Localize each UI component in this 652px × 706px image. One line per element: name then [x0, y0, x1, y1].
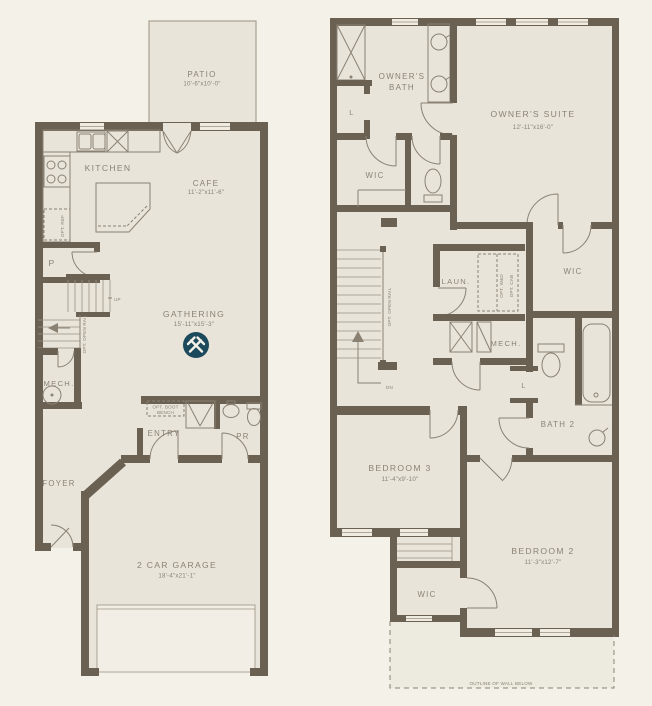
opt-open-rail-label-f1: OPT. OPEN RAIL [82, 314, 87, 353]
cafe-dims: 11'-2"x11'-6" [188, 189, 224, 196]
entry-label: ENTRY [148, 429, 181, 438]
first-floor-plan: PATIO 10'-6"x10'-0" KITCHEN CAFE 11'-2"x… [35, 21, 268, 676]
stairs-dn-label: DN [386, 385, 393, 390]
patio-dims: 10'-6"x10'-0" [183, 81, 220, 88]
foyer-label: FOYER [42, 479, 75, 488]
opt-cab-label: OPT. CAB [509, 275, 514, 298]
linen-label-owners: L [349, 108, 354, 117]
garage-door-recess [97, 605, 255, 672]
mech2-label: MECH. [491, 339, 522, 348]
mech-label: MECH. [44, 379, 75, 388]
opt-boot-bench-label-1: OPT. BOOT [152, 405, 178, 410]
laundry-label: LAUN. [442, 277, 471, 286]
shower-head-icon [350, 76, 353, 79]
wic-owners-label: WIC [365, 171, 384, 180]
opt-boot-bench-label-2: BENCH [157, 410, 174, 415]
kitchen-label: KITCHEN [85, 163, 132, 173]
bedroom3-label: BEDROOM 3 [368, 463, 431, 473]
pantry-label: P [48, 258, 55, 268]
opt-open-rail-label-f2: OPT. OPEN RAIL [387, 287, 392, 326]
linen-label-bath2: L [521, 383, 526, 390]
garage-label: 2 CAR GARAGE [137, 560, 217, 570]
wic-bedroom2-label: WIC [417, 590, 436, 599]
floor-plan-page: PATIO 10'-6"x10'-0" KITCHEN CAFE 11'-2"x… [0, 0, 652, 706]
bath2-label: BATH 2 [541, 420, 576, 429]
bedroom2-dims: 11'-3"x12'-7" [525, 559, 562, 566]
owners-bath-label-1: OWNER'S [379, 72, 426, 81]
room-main-fill [38, 125, 264, 398]
builder-hammers-logo-icon [183, 332, 209, 358]
owners-suite-label: OWNER'S SUITE [491, 109, 576, 119]
patio-label: PATIO [187, 70, 216, 79]
outline-of-wall-below-label: OUTLINE OF WALL BELOW [469, 681, 533, 686]
gathering-dims: 15'-11"x15'-3" [174, 321, 214, 328]
stairs-up-label: UP [114, 297, 121, 302]
second-floor-plan: OWNER'S BATH L WIC OWNER'S SUITE 12'-11"… [330, 18, 619, 688]
gathering-label: GATHERING [163, 309, 225, 319]
bedroom3-dims: 11'-4"x9'-10" [382, 476, 419, 483]
opt-wd-label: OPT. W&D [499, 274, 504, 298]
opt-ref-label: OPT. REF [60, 215, 65, 237]
owners-bath-label-2: BATH [389, 83, 415, 92]
owners-suite-dims: 12'-11"x16'-0" [513, 124, 553, 131]
garage-dims: 18'-4"x21'-1" [158, 573, 195, 580]
bedroom2-label: BEDROOM 2 [511, 546, 574, 556]
wic-hall-label: WIC [563, 267, 582, 276]
floor-plan-drawing: PATIO 10'-6"x10'-0" KITCHEN CAFE 11'-2"x… [0, 0, 652, 706]
pr-label: PR [236, 432, 249, 441]
cafe-label: CAFE [193, 179, 220, 188]
